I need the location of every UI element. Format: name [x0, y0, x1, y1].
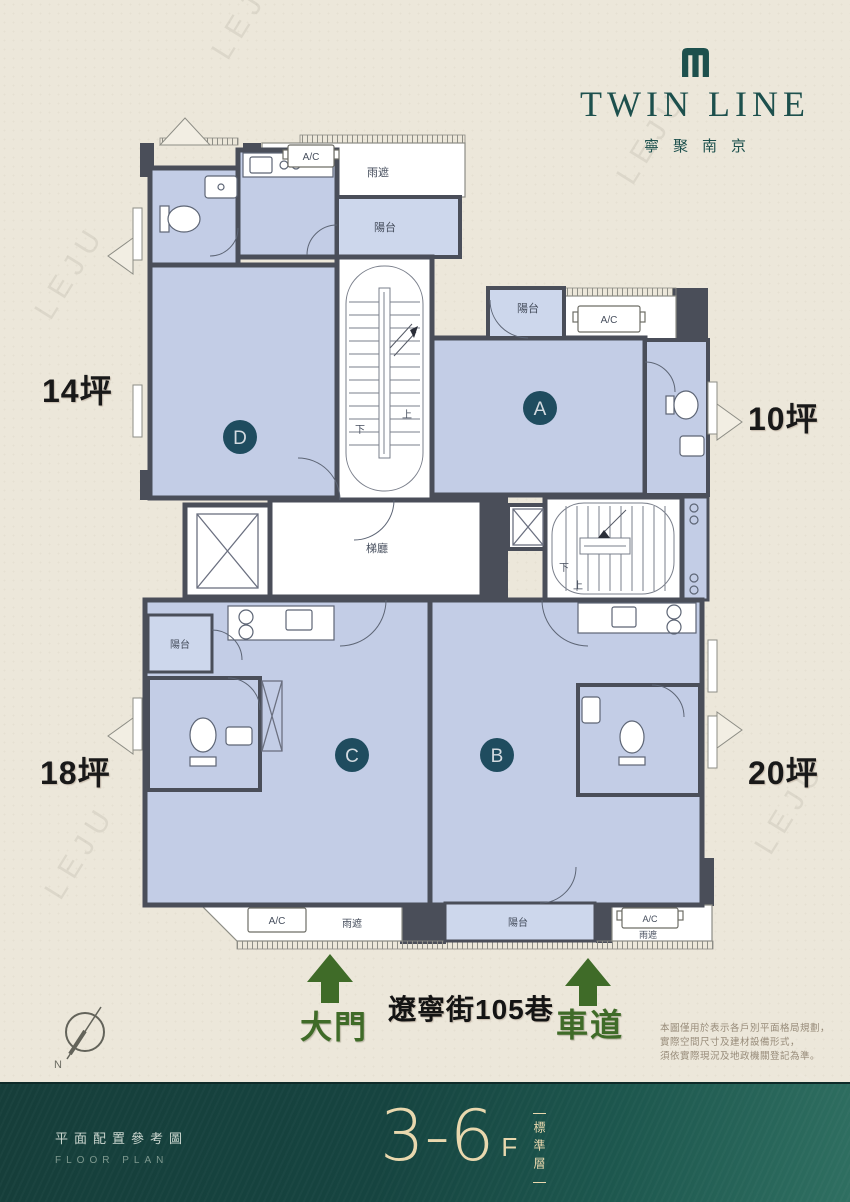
ac-label: A/C	[642, 914, 658, 924]
disclaimer-line: 本圖僅用於表示各戶別平面格局規劃，	[660, 1022, 845, 1036]
rain-cover-label: 雨遮	[342, 917, 362, 930]
svg-text:C: C	[345, 746, 359, 767]
balcony-label: 陽台	[517, 301, 539, 315]
area-label-c: 18坪	[40, 748, 111, 794]
svg-text:D: D	[233, 428, 247, 449]
stair-down-label: 下	[355, 425, 365, 436]
ac-label: A/C	[303, 152, 320, 163]
area-label-d: 14坪	[42, 366, 113, 412]
unit-marker-a: A	[523, 391, 557, 425]
svg-text:A: A	[534, 399, 547, 420]
bracket-line	[533, 1113, 546, 1114]
unit-marker-c: C	[335, 738, 369, 772]
north-compass: N	[54, 1007, 104, 1071]
floor-range: 3-6	[380, 1104, 494, 1168]
svg-text:B: B	[491, 746, 504, 767]
stair-up-label: 上	[573, 580, 583, 592]
disclaimer-line: 實際空間尺寸及建材設備形式，	[660, 1036, 845, 1050]
floor-type: 標準層	[531, 1121, 548, 1175]
footer-caption: 平面配置參考圖 FLOOR PLAN	[55, 1128, 188, 1166]
ac-label: A/C	[269, 916, 286, 927]
balcony-label: 陽台	[170, 638, 190, 651]
ac-label: A/C	[601, 315, 618, 326]
rain-cover-label: 雨遮	[367, 165, 389, 179]
footer-caption-en: FLOOR PLAN	[55, 1155, 188, 1166]
unit-marker-d: D	[223, 420, 257, 454]
elevator-hall-label: 梯廳	[366, 541, 388, 555]
disclaimer-line: 須依實際現況及地政機關登記為準。	[660, 1050, 845, 1064]
gate-arrow-icon	[307, 954, 353, 1003]
rain-cover-label: 雨遮	[639, 929, 657, 940]
balcony-label: 陽台	[374, 220, 396, 234]
disclaimer: 本圖僅用於表示各戶別平面格局規劃， 實際空間尺寸及建材設備形式， 須依實際現況及…	[660, 1022, 845, 1064]
footer-bar: 平面配置參考圖 FLOOR PLAN 3-6 F 標準層	[0, 1082, 850, 1202]
main-gate-label: 大門	[300, 1002, 368, 1048]
floor-indicator: 3-6 F	[380, 1104, 517, 1168]
footer-caption-zh: 平面配置參考圖	[55, 1128, 188, 1147]
floor-type-tag: 標準層	[514, 1108, 565, 1188]
street-name-label: 遼寧街105巷	[388, 988, 554, 1028]
driveway-arrow-icon	[565, 958, 611, 1006]
driveway-label: 車道	[556, 1000, 624, 1046]
balcony-label: 陽台	[508, 916, 528, 929]
bracket-line	[533, 1182, 546, 1183]
unit-marker-b: B	[480, 738, 514, 772]
area-label-b: 20坪	[748, 748, 819, 794]
stair-down-label: 下	[559, 563, 569, 574]
stair-up-label: 上	[402, 409, 412, 421]
compass-north-label: N	[54, 1059, 62, 1071]
area-label-a: 10坪	[748, 394, 819, 440]
